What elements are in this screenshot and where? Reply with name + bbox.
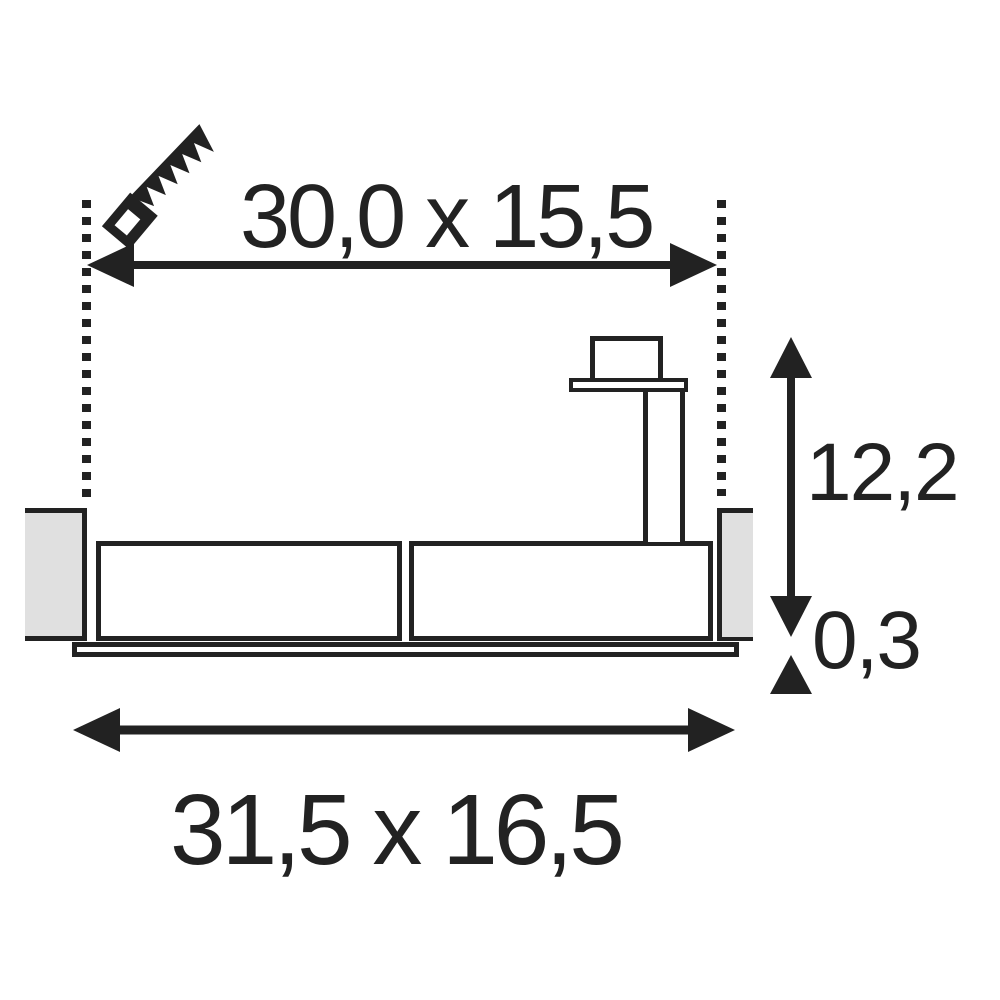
trim-dimension-label: 0,3: [812, 600, 920, 682]
overall-dimension-arrow: [58, 704, 750, 756]
lamp-module-right: [409, 541, 713, 641]
saw-icon: [100, 112, 230, 252]
connector-stem: [643, 386, 685, 542]
lamp-module-left: [96, 541, 402, 641]
mounting-plate: [569, 378, 688, 392]
trim-frame: [72, 642, 739, 657]
overall-dimension-label: 31,5 x 16,5: [170, 780, 621, 880]
technical-drawing: 30,0 x 15,5 12,2 0,3 31,5 x 16,5: [0, 0, 1000, 1000]
depth-dimension-label: 12,2: [806, 432, 958, 514]
connection-box: [590, 336, 663, 383]
cutout-dimension-label: 30,0 x 15,5: [240, 172, 652, 262]
ceiling-section-right: [717, 508, 753, 641]
ceiling-section-left: [25, 508, 87, 641]
